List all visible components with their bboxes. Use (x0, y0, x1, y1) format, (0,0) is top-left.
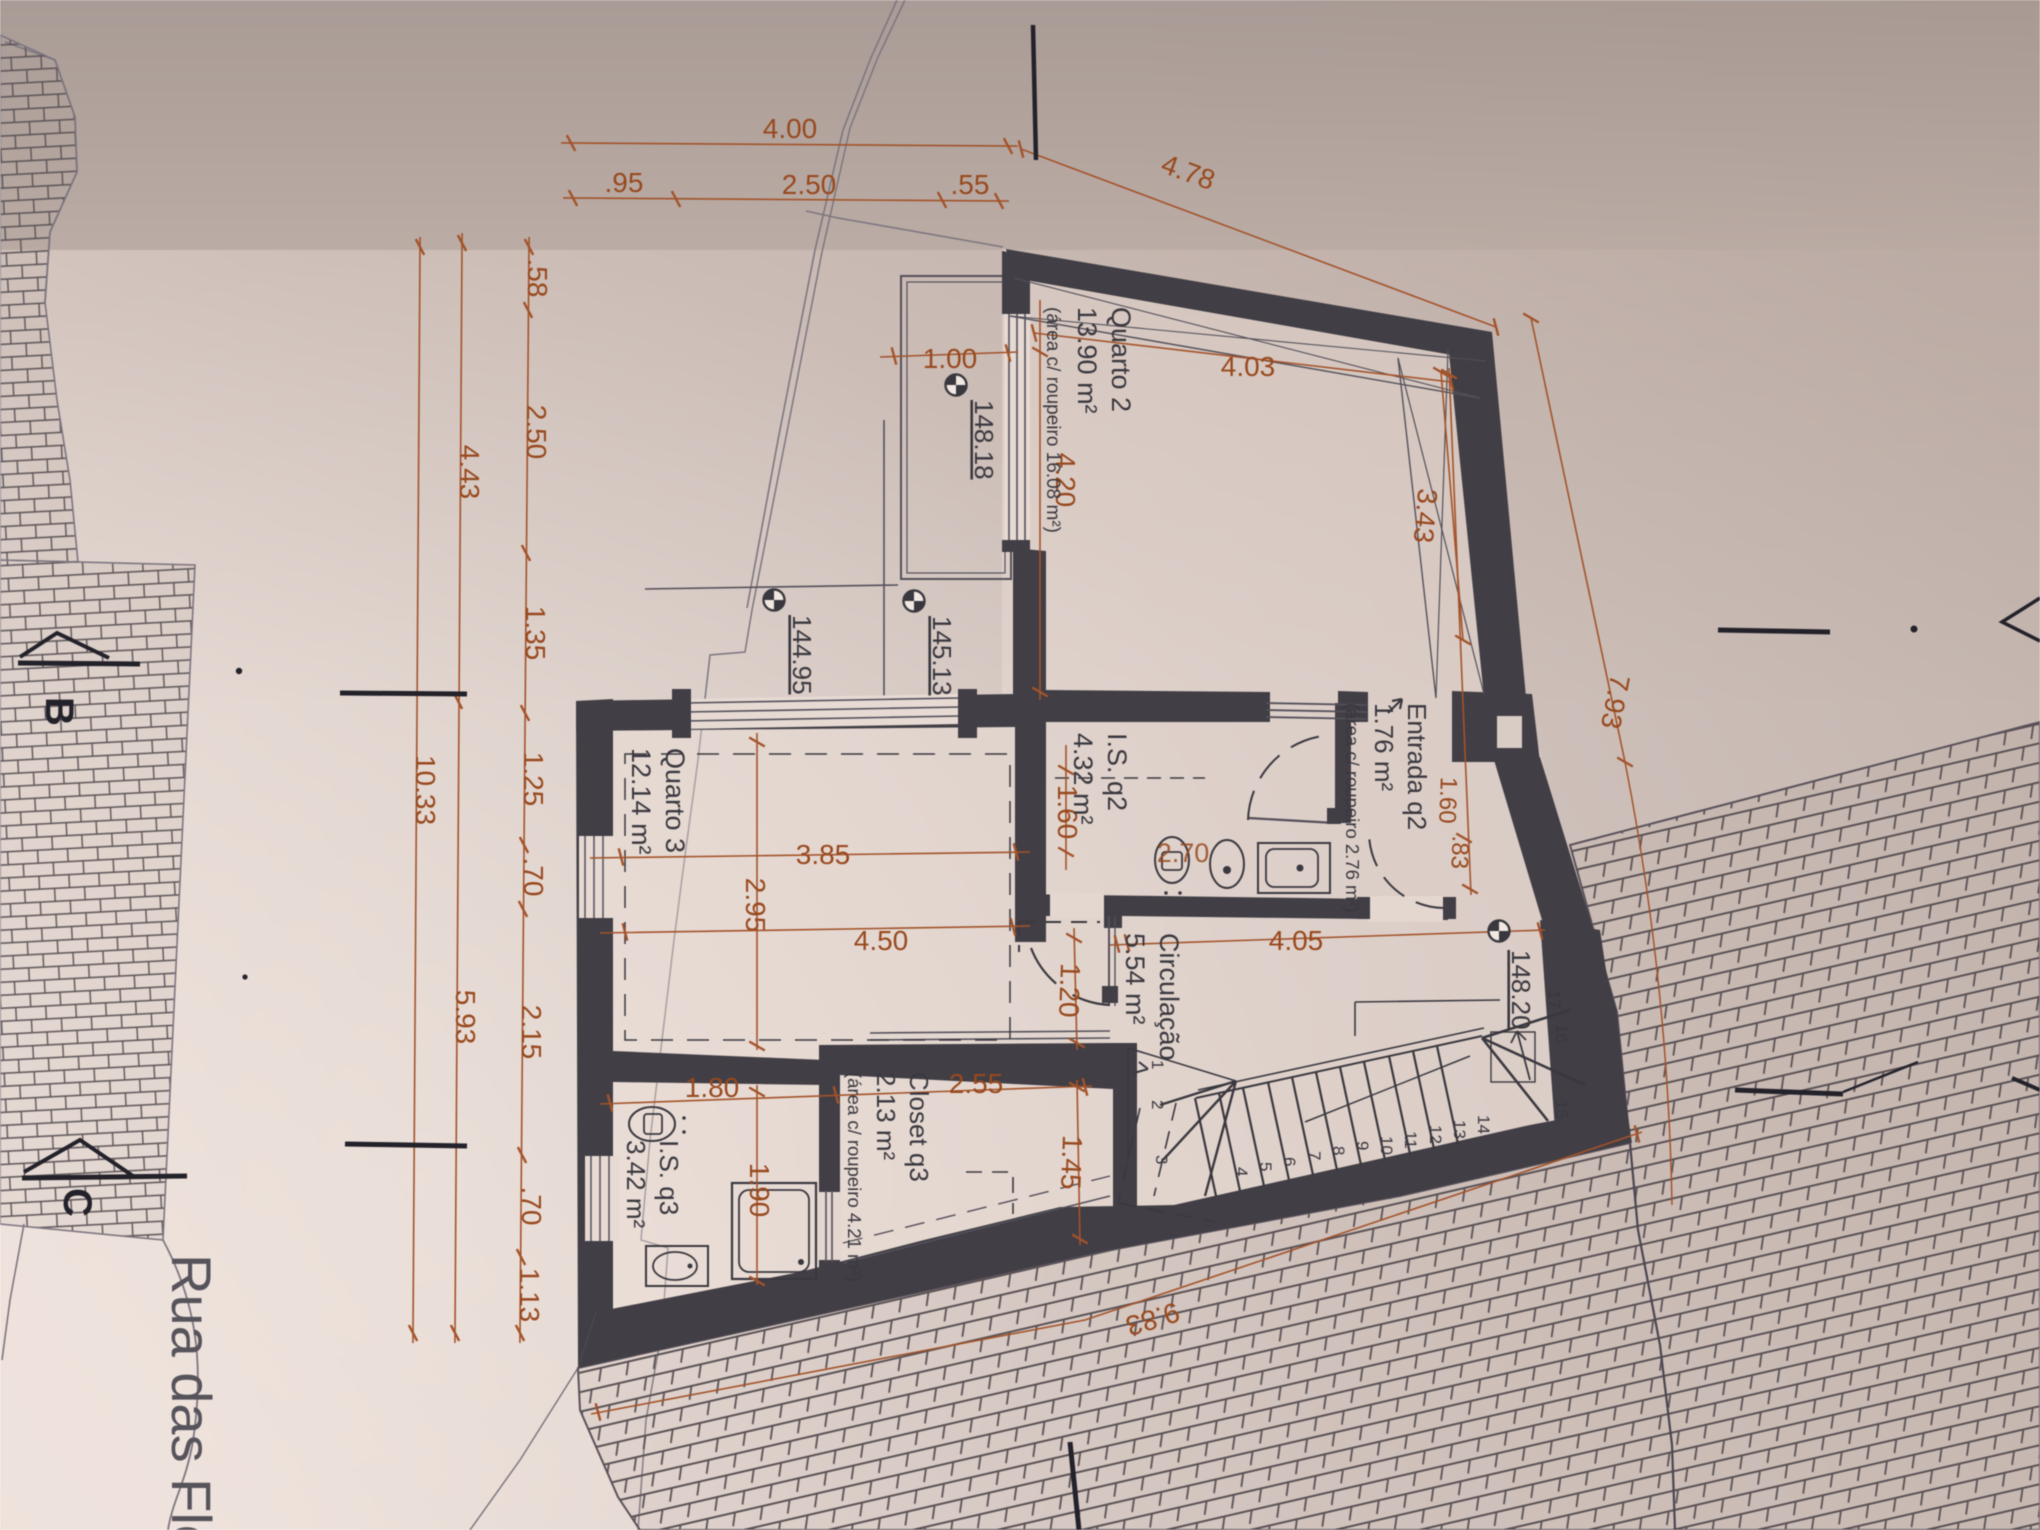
svg-text:2: 2 (1148, 1100, 1167, 1109)
svg-text:Rua das Flo: Rua das Flo (160, 1254, 223, 1530)
svg-text:16: 16 (1552, 1024, 1571, 1043)
svg-text:2.70: 2.70 (1157, 838, 1210, 868)
svg-text:2.15: 2.15 (516, 1005, 547, 1060)
svg-text:1.25: 1.25 (518, 752, 549, 807)
svg-text:1.90: 1.90 (744, 1163, 775, 1218)
svg-text:2.95: 2.95 (740, 878, 771, 933)
svg-text:3: 3 (1152, 1155, 1171, 1164)
svg-text:4: 4 (1232, 1167, 1251, 1176)
svg-text:3.85: 3.85 (796, 839, 851, 870)
svg-text:148.18: 148.18 (969, 400, 999, 480)
svg-text:7: 7 (1305, 1151, 1324, 1160)
svg-text:4.03: 4.03 (1221, 351, 1276, 382)
svg-text:5.93: 5.93 (450, 990, 481, 1045)
svg-text:2.50: 2.50 (782, 169, 837, 200)
svg-text:9: 9 (1353, 1141, 1372, 1150)
svg-text:5: 5 (1256, 1162, 1275, 1171)
svg-text:4.43: 4.43 (454, 445, 485, 500)
svg-text:12: 12 (1426, 1125, 1445, 1144)
svg-text:1.80: 1.80 (685, 1072, 740, 1103)
svg-text:2.50: 2.50 (521, 405, 552, 460)
svg-text:148.20: 148.20 (1506, 950, 1536, 1030)
svg-text:11: 11 (1401, 1131, 1420, 1149)
svg-text:10.33: 10.33 (410, 755, 441, 825)
svg-text:.58: .58 (522, 259, 553, 298)
svg-text:.70: .70 (518, 858, 549, 897)
svg-text:1.00: 1.00 (923, 343, 978, 374)
svg-text:6: 6 (1280, 1157, 1299, 1166)
svg-text:10: 10 (1377, 1136, 1396, 1155)
svg-text:.83: .83 (1445, 835, 1473, 869)
svg-text:4.50: 4.50 (854, 925, 909, 956)
svg-text:144.95: 144.95 (787, 615, 817, 695)
svg-text:1: 1 (1148, 1060, 1167, 1069)
svg-text:1.35: 1.35 (520, 606, 551, 661)
svg-text:145.13: 145.13 (927, 616, 957, 696)
svg-text:.95: .95 (605, 167, 644, 198)
svg-text:4.05: 4.05 (1269, 925, 1324, 956)
svg-text:1.20: 1.20 (1053, 963, 1086, 1019)
svg-text:.55: .55 (951, 169, 990, 200)
svg-text:14: 14 (1474, 1115, 1493, 1134)
svg-text:.70: .70 (516, 1187, 547, 1226)
svg-text:4.00: 4.00 (763, 113, 818, 144)
svg-text:C: C (55, 1188, 99, 1217)
svg-text:13: 13 (1450, 1120, 1469, 1139)
svg-text:3.43: 3.43 (1408, 487, 1444, 544)
svg-text:2.55: 2.55 (949, 1068, 1004, 1099)
svg-text:1.60: 1.60 (1433, 776, 1462, 824)
svg-text:17: 17 (1545, 990, 1564, 1009)
svg-text:1.13: 1.13 (514, 1268, 545, 1323)
svg-text:1.45: 1.45 (1055, 1135, 1088, 1191)
svg-text:8: 8 (1329, 1146, 1348, 1155)
svg-text:B: B (37, 697, 81, 726)
svg-text:15: 15 (1552, 1100, 1571, 1119)
